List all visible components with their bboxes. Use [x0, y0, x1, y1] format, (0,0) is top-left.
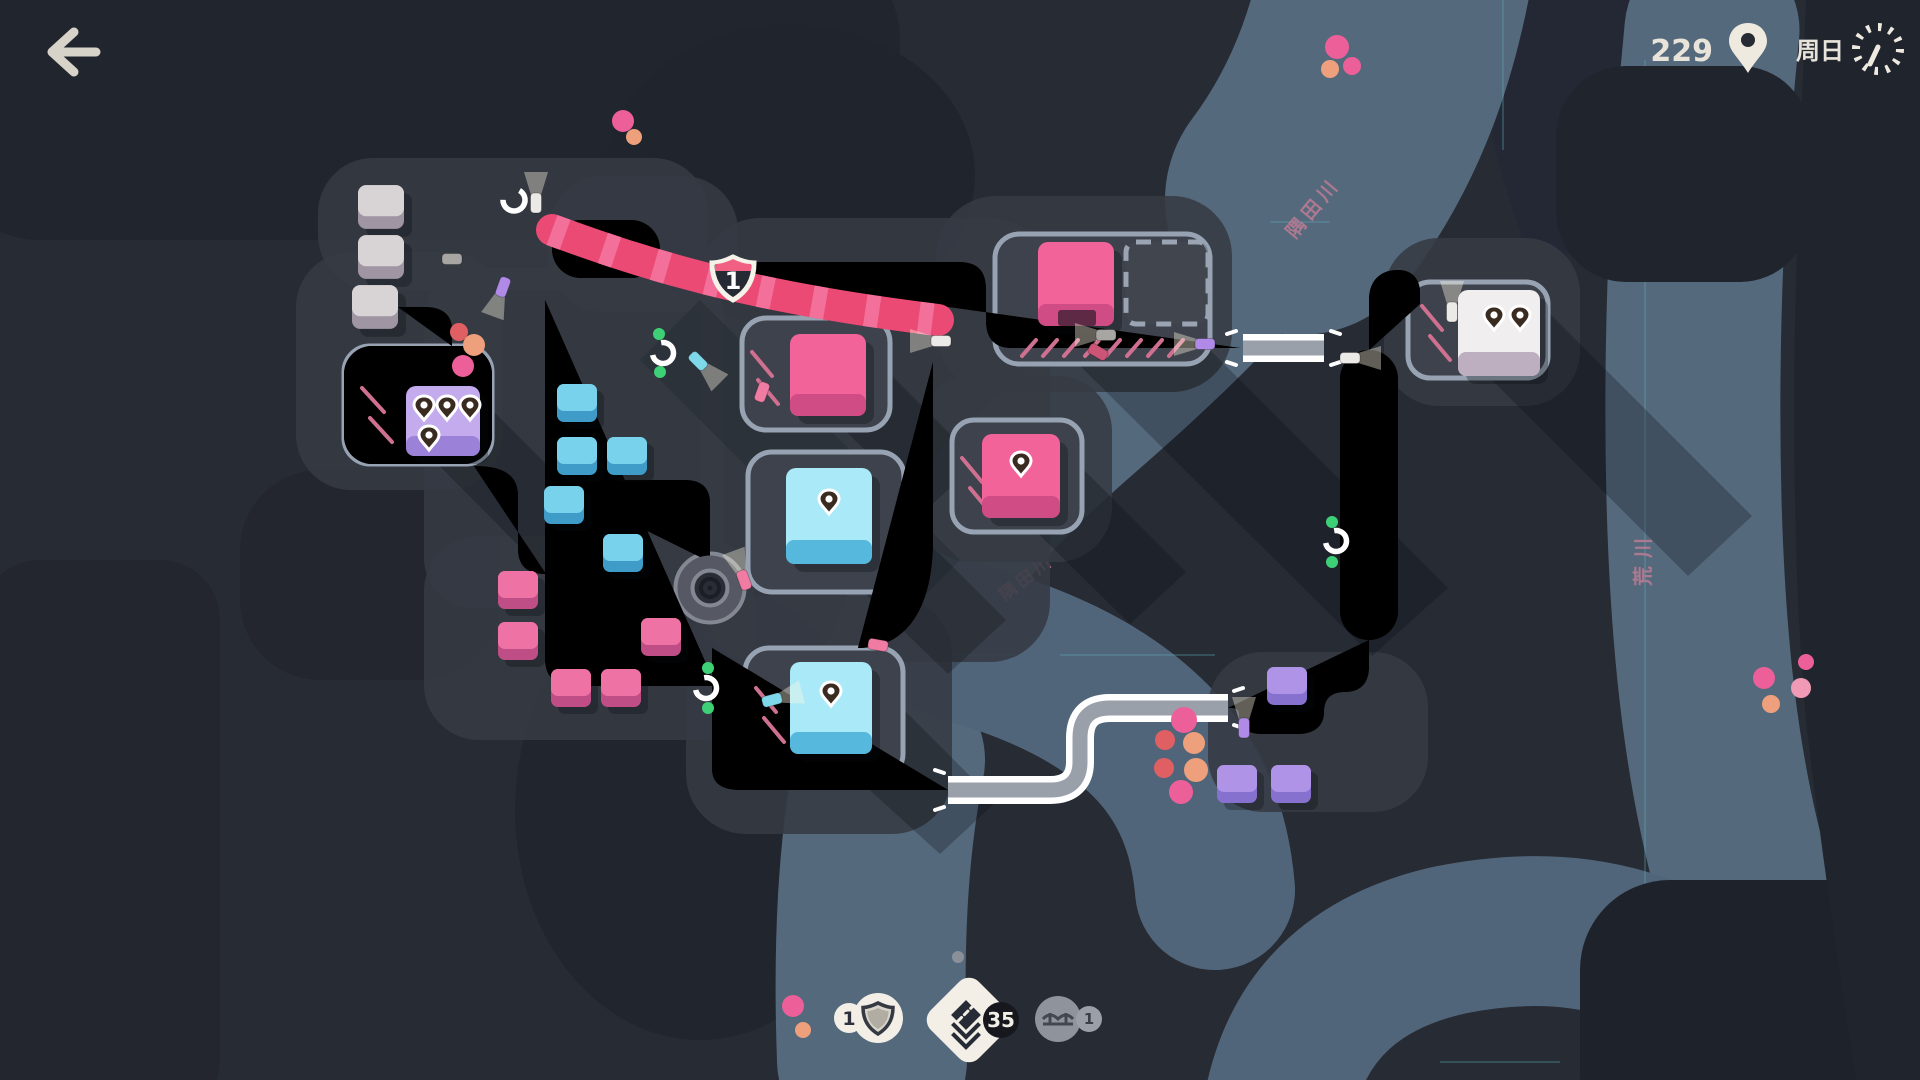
destination-cyan-2	[790, 662, 880, 762]
tree	[1169, 780, 1193, 804]
house-pink	[498, 622, 545, 667]
tree	[452, 355, 474, 377]
tree	[1155, 730, 1175, 750]
bridge-count: 1	[1084, 1010, 1094, 1028]
destination-pink-2	[982, 434, 1068, 526]
tree	[1753, 667, 1775, 689]
handle-dot[interactable]	[952, 951, 964, 963]
tree	[1171, 707, 1197, 733]
house-pink	[498, 571, 545, 616]
destination-purple	[406, 386, 488, 464]
house-gray	[352, 285, 406, 337]
house-blue	[544, 486, 591, 531]
tree	[1798, 654, 1814, 670]
house-blue	[557, 437, 604, 482]
tree	[1325, 35, 1349, 59]
tree	[782, 995, 804, 1017]
tree	[612, 110, 634, 132]
tree	[1321, 60, 1339, 78]
house-gray	[358, 235, 412, 287]
house-pink	[551, 669, 598, 714]
expansion-plot-dashed	[1126, 242, 1208, 324]
tree	[1791, 678, 1811, 698]
tree	[626, 129, 642, 145]
tree	[1184, 758, 1208, 782]
destination-cyan-1	[786, 468, 880, 572]
house-pink	[601, 669, 648, 714]
house-blue	[603, 534, 650, 579]
bridge-sumida-upper	[1227, 331, 1340, 365]
house-blue	[607, 437, 654, 482]
destination-pink-top	[1038, 242, 1122, 334]
house-purple	[1271, 765, 1318, 810]
tree	[1343, 57, 1361, 75]
house-gray	[358, 185, 412, 237]
roundabout	[695, 573, 725, 603]
game-screen: 隅田川 隅田川 荒川	[0, 0, 1920, 1080]
house-purple	[1267, 667, 1314, 712]
tree	[795, 1022, 811, 1038]
house-pink	[641, 618, 688, 663]
tree	[1762, 695, 1780, 713]
score-value: 229	[1650, 34, 1713, 69]
tree	[1183, 732, 1205, 754]
destination-white	[1458, 290, 1548, 384]
destination-pink-1	[790, 334, 874, 424]
road-count: 35	[987, 1008, 1015, 1032]
motorway-shield-number: 1	[725, 267, 742, 295]
motorway-count: 1	[842, 1008, 855, 1030]
house-purple	[1217, 765, 1264, 810]
house-blue	[557, 384, 604, 429]
day-label: 周日	[1796, 37, 1844, 65]
tree	[463, 334, 485, 356]
game-map[interactable]: 隅田川 隅田川 荒川	[0, 0, 1920, 1080]
car	[442, 254, 462, 265]
tree	[1154, 758, 1174, 778]
